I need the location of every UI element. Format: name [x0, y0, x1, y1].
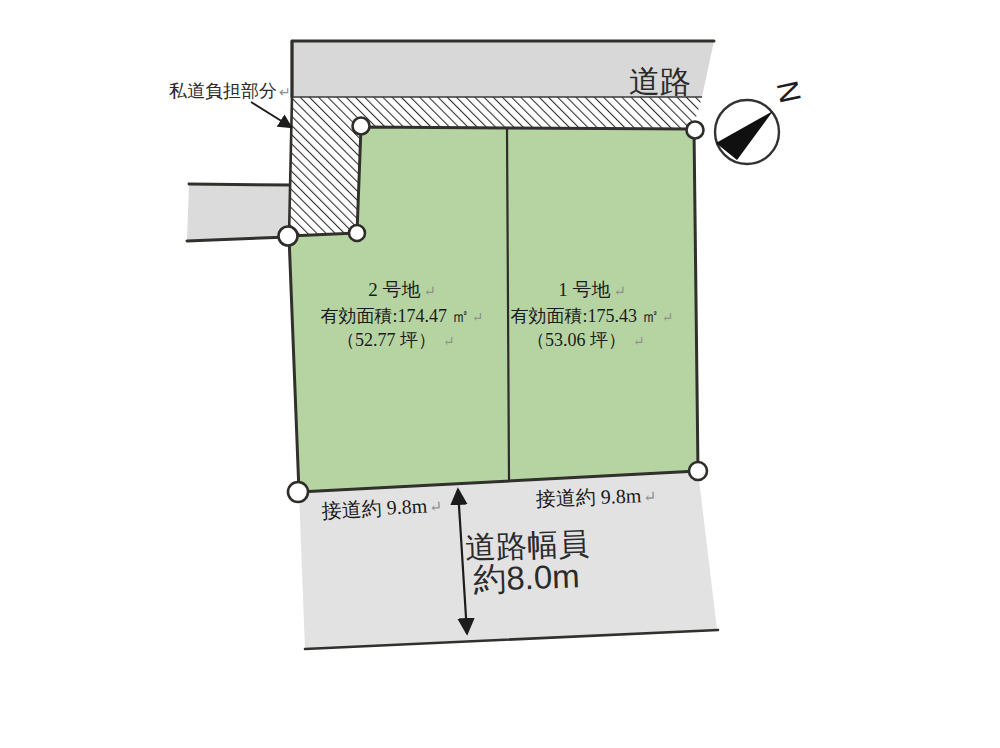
road-label: 道路 — [629, 64, 691, 99]
return-mark: ↵ — [633, 333, 645, 349]
return-mark: ↵ — [279, 84, 291, 100]
private-road-arrow — [251, 102, 291, 127]
plot-diagram: N 道路 私道負担部分↵ 2 号地↵ 有効面積:174.47 ㎡↵ （52.77… — [0, 0, 1000, 748]
lot1-name-label: 1 号地↵ — [558, 279, 626, 300]
return-mark: ↵ — [443, 333, 455, 349]
vertex-marker — [279, 227, 298, 246]
vertex-marker — [687, 122, 704, 139]
return-mark: ↵ — [662, 309, 674, 325]
lot1-area-label: 有効面積:175.43 ㎡↵ — [511, 306, 674, 326]
vertex-marker — [689, 462, 707, 480]
vertex-marker — [353, 118, 370, 135]
frontage-right-label: 接道約 9.8m↵ — [535, 484, 656, 510]
road-width-label-line2: 約8.0m — [472, 557, 581, 598]
return-mark: ↵ — [613, 283, 625, 299]
frontage-right-text: 接道約 9.8m — [535, 484, 642, 510]
road-width-labels: 道路幅員 約8.0m — [465, 526, 591, 598]
lot1-tsubo-text: （53.06 坪） — [527, 330, 626, 350]
lot1-name-text: 1 号地 — [558, 279, 610, 300]
vertex-marker — [288, 482, 308, 502]
lot1-area-text: 有効面積:175.43 ㎡ — [511, 306, 660, 326]
lot2-area-label: 有効面積:174.47 ㎡↵ — [321, 306, 484, 326]
compass-north-label: N — [771, 78, 808, 106]
return-mark: ↵ — [423, 283, 435, 299]
lot2-area-text: 有効面積:174.47 ㎡ — [321, 306, 470, 326]
private-road-label-text: 私道負担部分 — [169, 81, 277, 101]
left-road-area — [187, 184, 292, 241]
vertex-marker — [349, 225, 365, 241]
lot2-name-label: 2 号地↵ — [368, 279, 436, 300]
return-mark: ↵ — [643, 488, 657, 505]
compass: N — [715, 78, 807, 164]
lot2-name-text: 2 号地 — [368, 279, 420, 300]
left-road-top-edge — [189, 184, 292, 185]
return-mark: ↵ — [472, 309, 484, 325]
site-plan-svg: N 道路 私道負担部分↵ 2 号地↵ 有効面積:174.47 ㎡↵ （52.77… — [0, 0, 1000, 748]
private-road-label: 私道負担部分↵ — [169, 81, 291, 101]
lot2-tsubo-text: （52.77 坪） — [337, 330, 436, 350]
return-mark: ↵ — [429, 498, 443, 516]
